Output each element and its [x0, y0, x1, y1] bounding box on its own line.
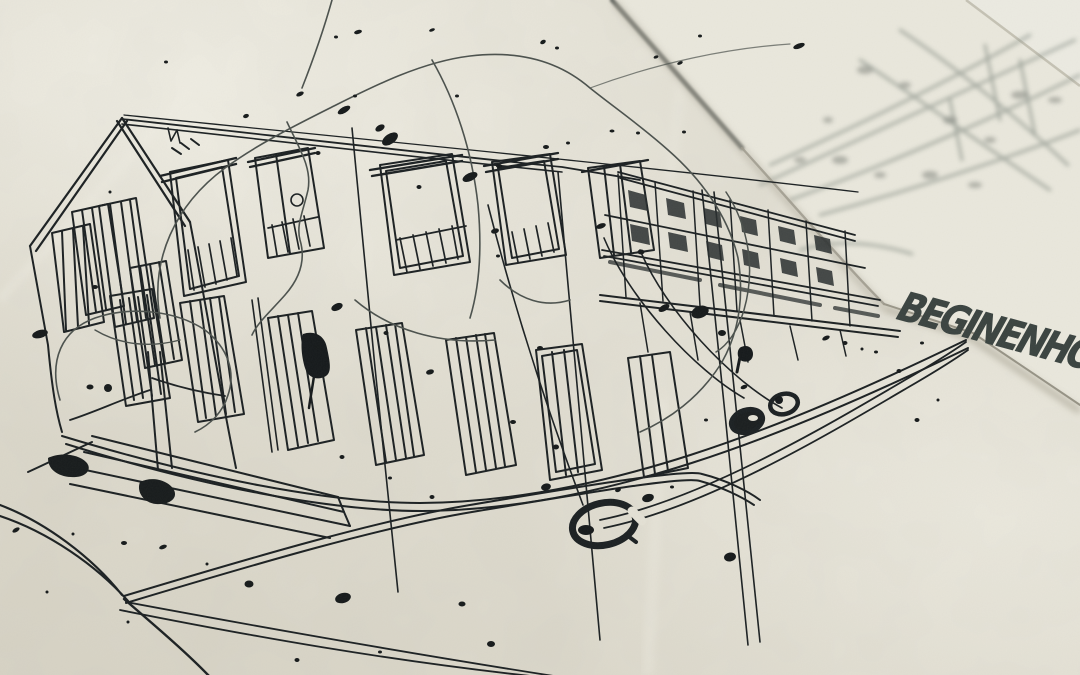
photo-of-ink-sketch: BEGINENHOF: [0, 0, 1080, 675]
paper-grain: [0, 0, 1080, 675]
